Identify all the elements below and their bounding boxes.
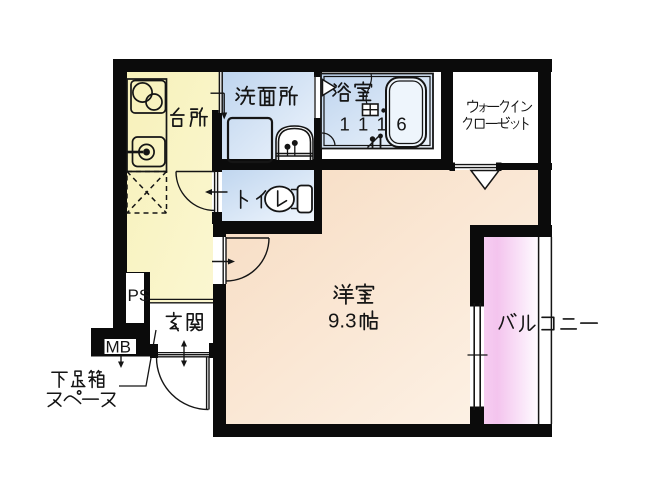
svg-text:9.3: 9.3 [328,310,357,333]
svg-text:PS: PS [128,286,151,305]
svg-text:1116: 1116 [340,114,417,135]
svg-text:MB: MB [106,338,132,357]
